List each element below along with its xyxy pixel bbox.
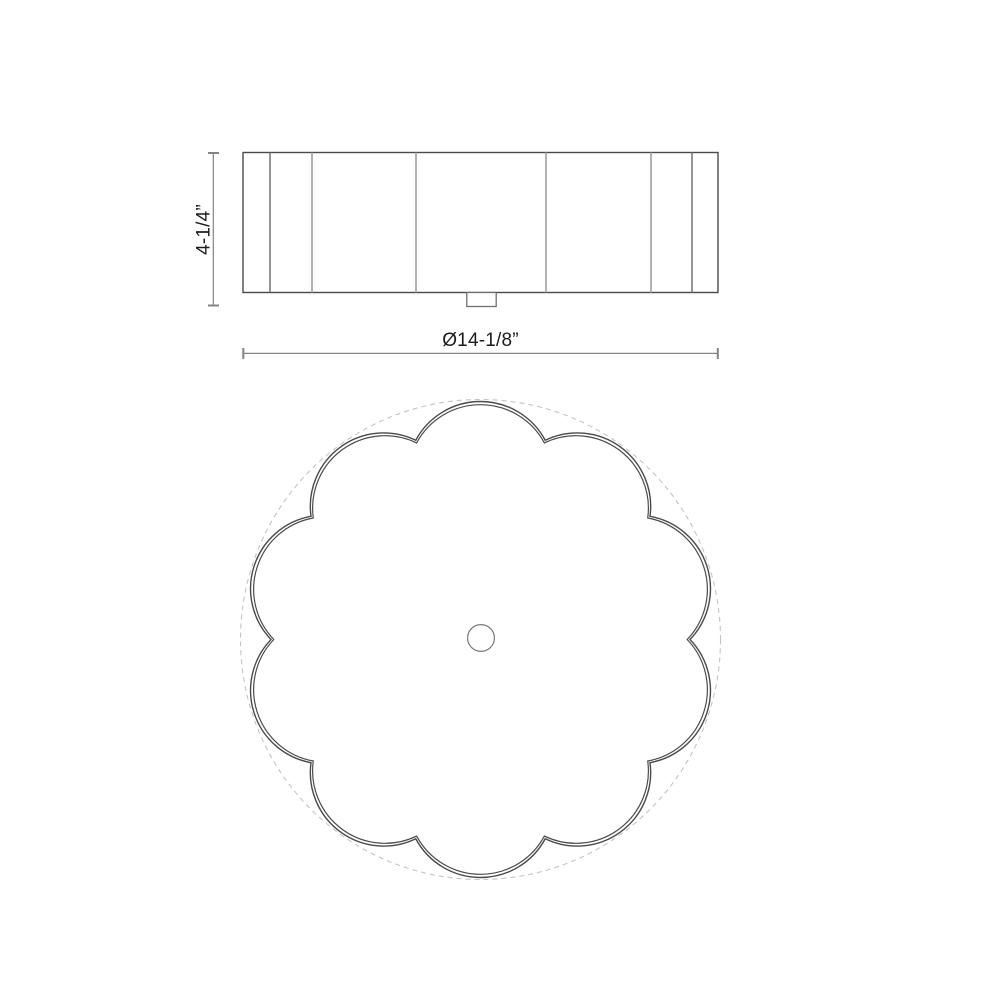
center-hole-circle [468, 625, 495, 652]
drawing-canvas: 4-1/4” Ø14-1/8” [0, 0, 1000, 1000]
side-elevation-view [243, 153, 718, 307]
diameter-dimension: Ø14-1/8” [243, 330, 718, 359]
ceiling-mount-block [467, 293, 496, 307]
technical-drawing-svg: 4-1/4” Ø14-1/8” [0, 0, 1000, 1000]
fixture-body-outline [243, 153, 718, 293]
plan-view [241, 400, 721, 880]
height-dimension: 4-1/4” [194, 153, 220, 306]
height-dim-label: 4-1/4” [194, 204, 215, 255]
diameter-dim-label: Ø14-1/8” [442, 330, 519, 351]
